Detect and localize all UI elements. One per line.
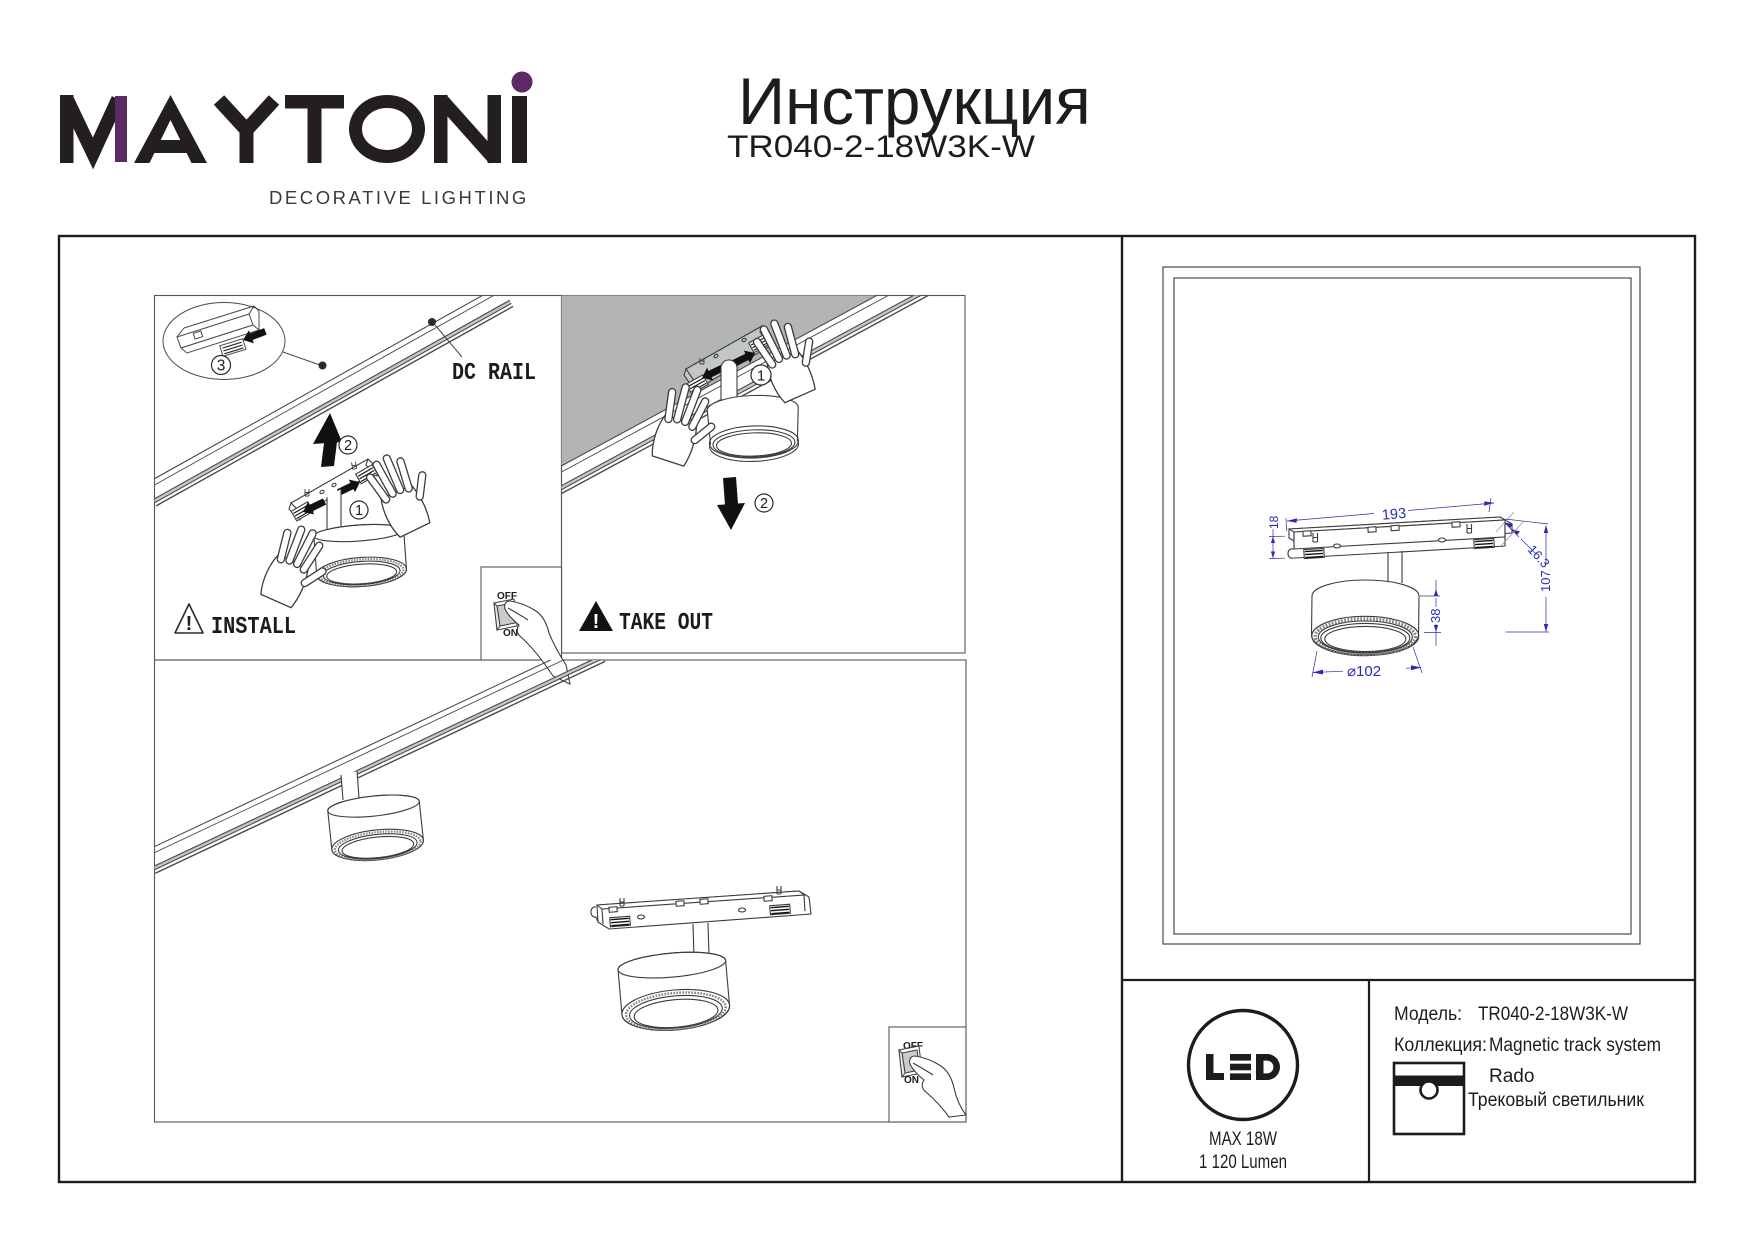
svg-text:Модель:: Модель: [1394,1004,1462,1025]
svg-text:⌀102: ⌀102 [1347,663,1381,680]
svg-text:ON: ON [503,628,518,639]
svg-text:DC RAIL: DC RAIL [452,360,536,387]
svg-text:DECORATIVE LIGHTING: DECORATIVE LIGHTING [269,187,529,208]
svg-text:2: 2 [344,438,352,454]
svg-text:Коллекция:: Коллекция: [1394,1035,1487,1056]
svg-text:Трековый светильник: Трековый светильник [1468,1090,1645,1111]
svg-text:MAX 18W: MAX 18W [1209,1129,1277,1150]
svg-text:16.3: 16.3 [1525,542,1553,571]
svg-text:1 120 Lumen: 1 120 Lumen [1199,1152,1287,1173]
svg-text:1: 1 [757,368,765,385]
svg-text:18: 18 [1267,515,1281,529]
svg-text:TR040-2-18W3K-W: TR040-2-18W3K-W [727,128,1035,164]
svg-text:TR040-2-18W3K-W: TR040-2-18W3K-W [1478,1004,1628,1025]
svg-text:TAKE OUT: TAKE OUT [619,610,713,637]
svg-text:!: ! [593,611,600,633]
svg-text:193: 193 [1381,506,1407,524]
svg-text:Magnetic track system: Magnetic track system [1489,1035,1661,1056]
svg-text:INSTALL: INSTALL [211,614,296,641]
svg-text:107: 107 [1538,570,1553,592]
svg-text:ON: ON [904,1075,919,1086]
svg-text:38: 38 [1428,609,1443,623]
svg-text:1: 1 [355,503,363,519]
svg-text:2: 2 [760,496,768,512]
svg-text:Rado: Rado [1489,1066,1534,1087]
svg-text:!: ! [186,613,193,635]
svg-text:3: 3 [217,358,226,375]
